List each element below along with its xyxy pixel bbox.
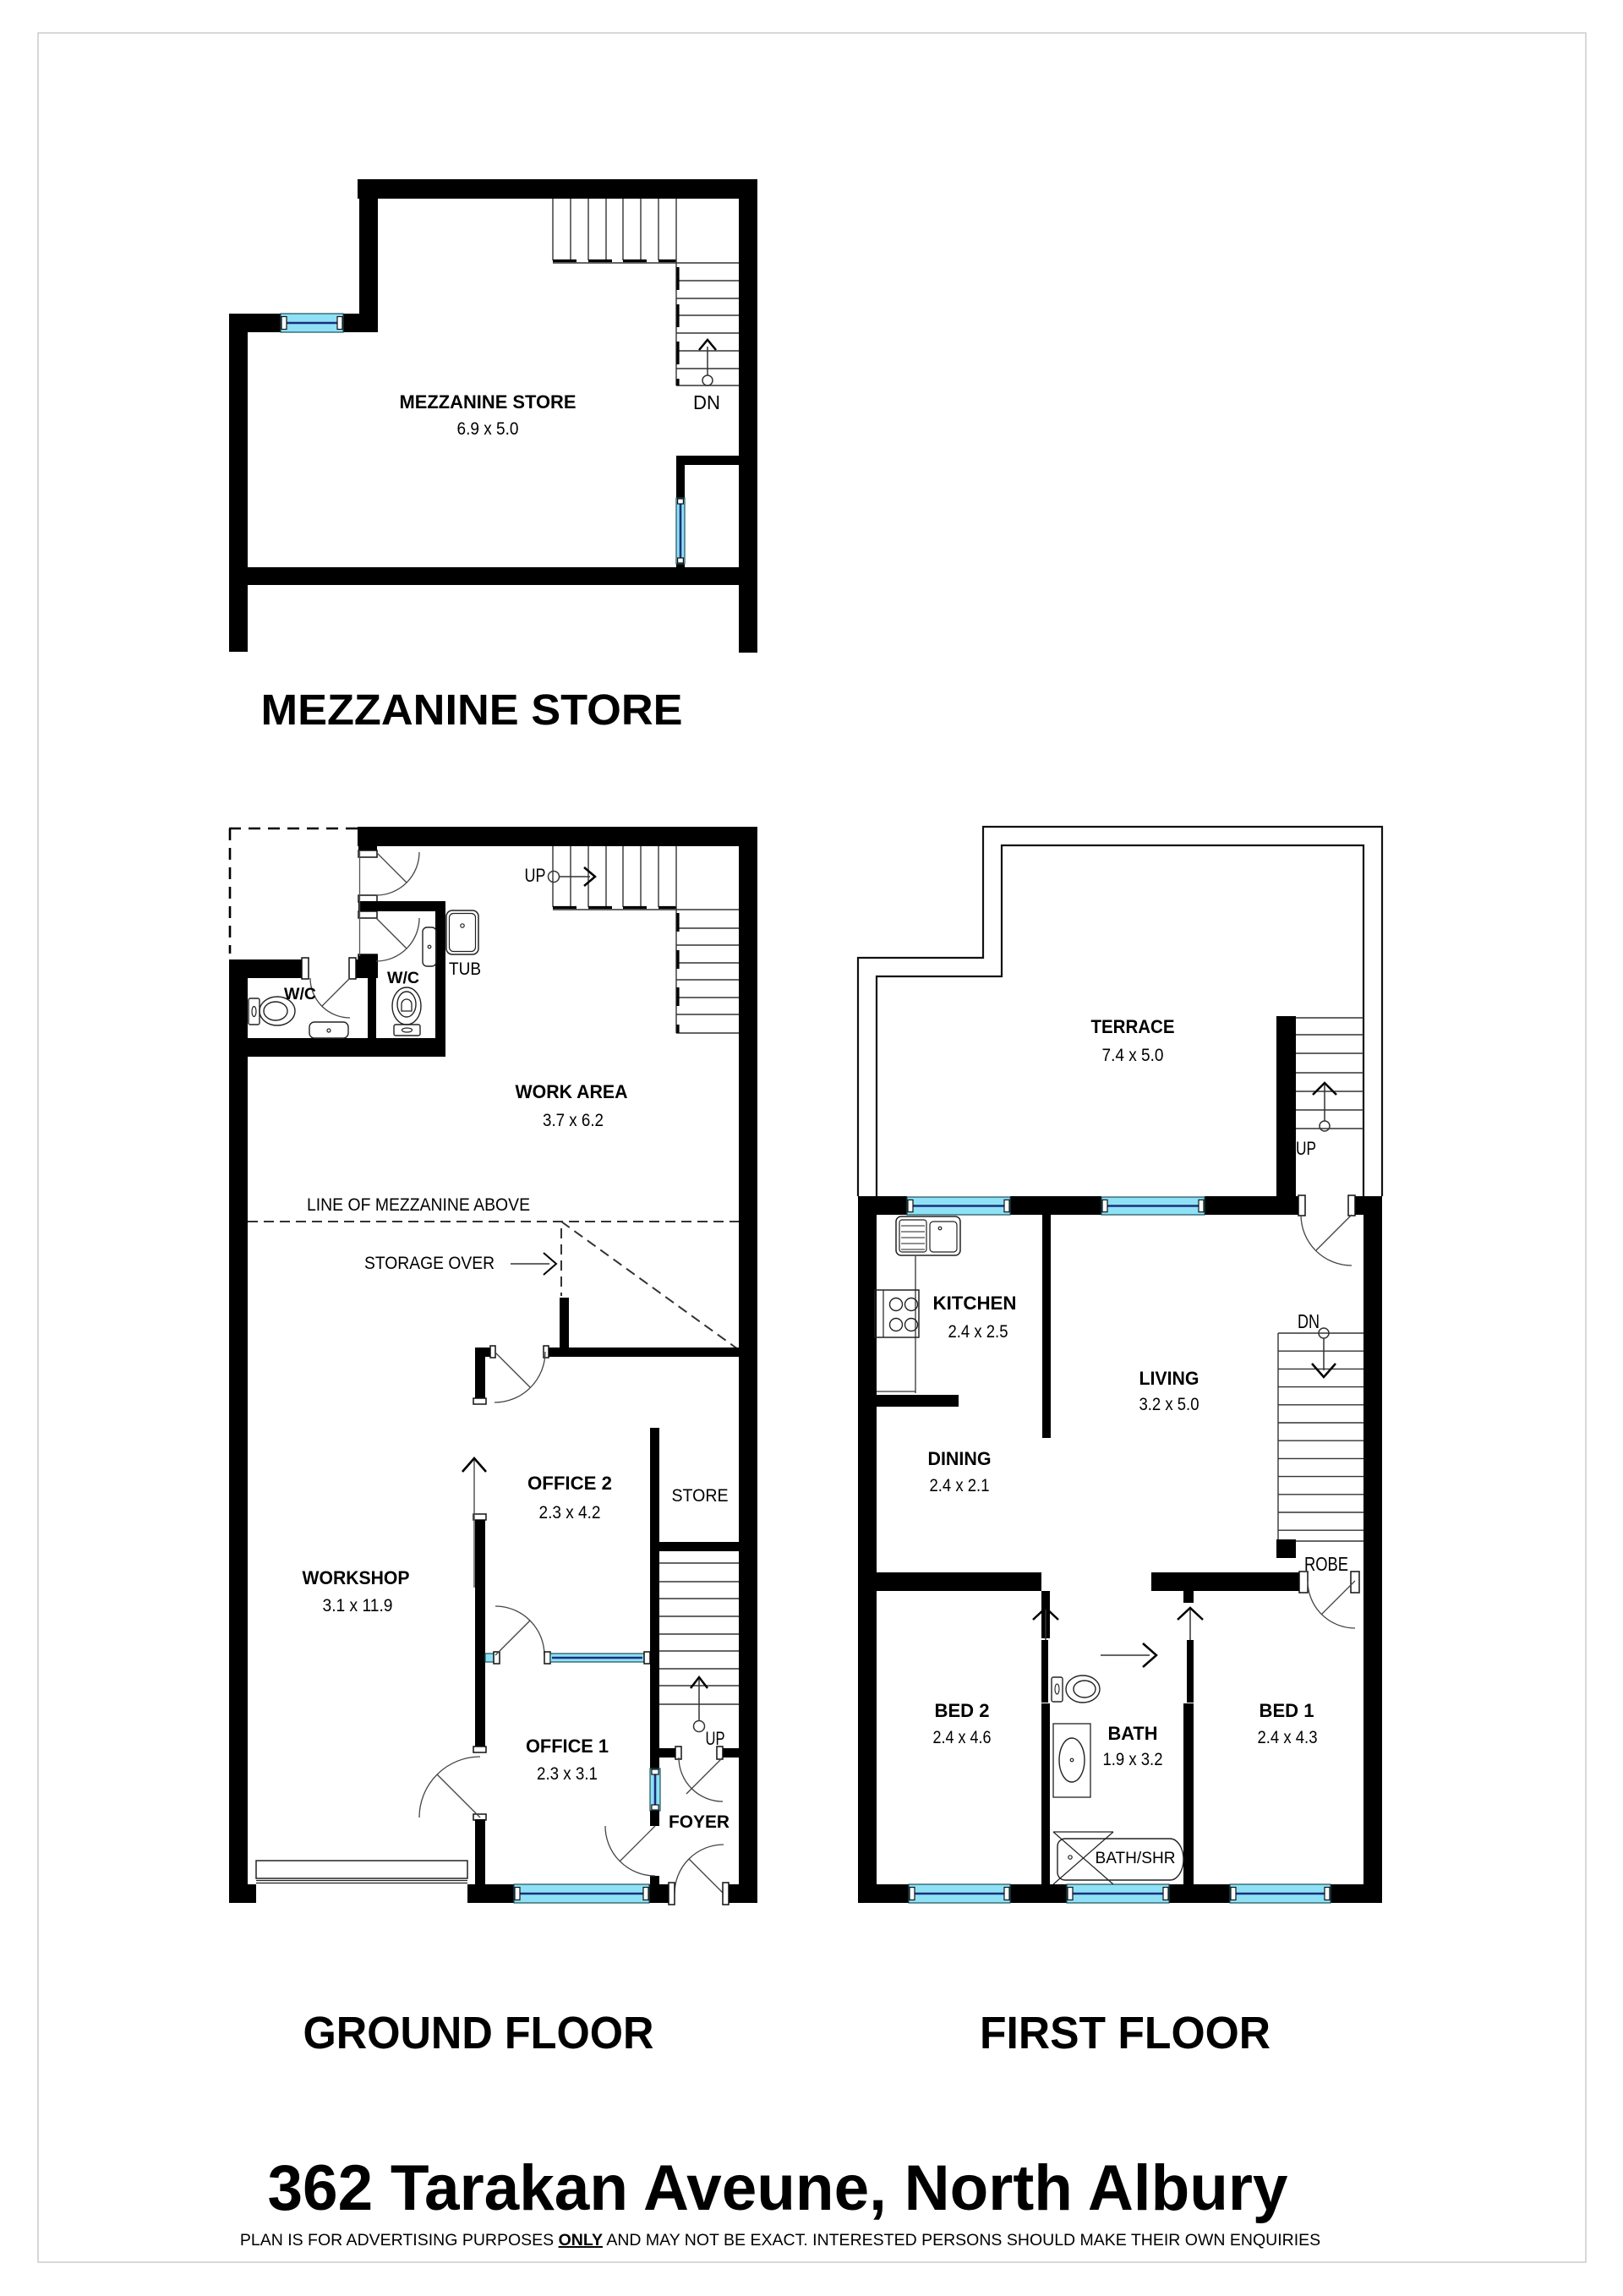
svg-text:1.9 x 3.2: 1.9 x 3.2 <box>1103 1750 1163 1769</box>
svg-text:BATH/SHR: BATH/SHR <box>1096 1849 1176 1867</box>
svg-text:WORKSHOP: WORKSHOP <box>303 1567 410 1588</box>
svg-text:LINE OF MEZZANINE ABOVE: LINE OF MEZZANINE ABOVE <box>307 1195 530 1215</box>
svg-text:TUB: TUB <box>449 959 481 979</box>
svg-text:UP: UP <box>1296 1138 1316 1159</box>
svg-text:BED 2: BED 2 <box>935 1700 990 1721</box>
svg-text:W/C: W/C <box>284 986 316 1003</box>
svg-text:3.2 x 5.0: 3.2 x 5.0 <box>1139 1395 1199 1414</box>
svg-text:STORE: STORE <box>672 1486 729 1506</box>
svg-text:WORK AREA: WORK AREA <box>516 1081 628 1102</box>
svg-text:6.9 x 5.0: 6.9 x 5.0 <box>457 419 519 439</box>
svg-text:W/C: W/C <box>387 970 419 987</box>
svg-text:2.3 x 3.1: 2.3 x 3.1 <box>537 1764 598 1784</box>
svg-text:2.4 x 2.1: 2.4 x 2.1 <box>930 1476 990 1495</box>
svg-text:2.4 x 4.3: 2.4 x 4.3 <box>1258 1728 1318 1747</box>
svg-text:2.4 x 2.5: 2.4 x 2.5 <box>948 1322 1008 1342</box>
svg-text:7.4 x 5.0: 7.4 x 5.0 <box>1102 1046 1164 1065</box>
svg-text:TERRACE: TERRACE <box>1091 1016 1175 1037</box>
svg-text:FIRST FLOOR: FIRST FLOOR <box>980 2008 1271 2058</box>
svg-text:362 Tarakan Aveune, North Albu: 362 Tarakan Aveune, North Albury <box>268 2152 1288 2224</box>
svg-text:GROUND FLOOR: GROUND FLOOR <box>303 2008 654 2058</box>
svg-text:PLAN IS FOR ADVERTISING PURPOS: PLAN IS FOR ADVERTISING PURPOSES ONLY AN… <box>240 2231 1320 2250</box>
svg-text:DINING: DINING <box>928 1448 992 1469</box>
svg-text:OFFICE 1: OFFICE 1 <box>526 1736 609 1757</box>
svg-text:DN: DN <box>693 391 720 413</box>
svg-text:2.3 x 4.2: 2.3 x 4.2 <box>539 1503 601 1522</box>
svg-text:LIVING: LIVING <box>1139 1368 1199 1389</box>
svg-text:FOYER: FOYER <box>669 1812 730 1832</box>
svg-text:3.1 x 11.9: 3.1 x 11.9 <box>323 1596 393 1615</box>
svg-text:2.4 x 4.6: 2.4 x 4.6 <box>933 1728 992 1747</box>
svg-text:UP: UP <box>706 1728 725 1749</box>
svg-text:MEZZANINE STORE: MEZZANINE STORE <box>261 686 683 734</box>
svg-text:OFFICE 2: OFFICE 2 <box>527 1473 612 1494</box>
svg-text:BATH: BATH <box>1108 1723 1158 1744</box>
svg-text:DN: DN <box>1298 1310 1320 1332</box>
svg-text:MEZZANINE STORE: MEZZANINE STORE <box>400 391 577 413</box>
svg-text:3.7 x 6.2: 3.7 x 6.2 <box>543 1111 604 1130</box>
svg-text:STORAGE OVER: STORAGE OVER <box>364 1254 495 1273</box>
svg-text:UP: UP <box>525 865 546 886</box>
svg-text:BED 1: BED 1 <box>1260 1700 1314 1721</box>
svg-text:KITCHEN: KITCHEN <box>933 1293 1017 1314</box>
svg-text:ROBE: ROBE <box>1304 1553 1348 1575</box>
